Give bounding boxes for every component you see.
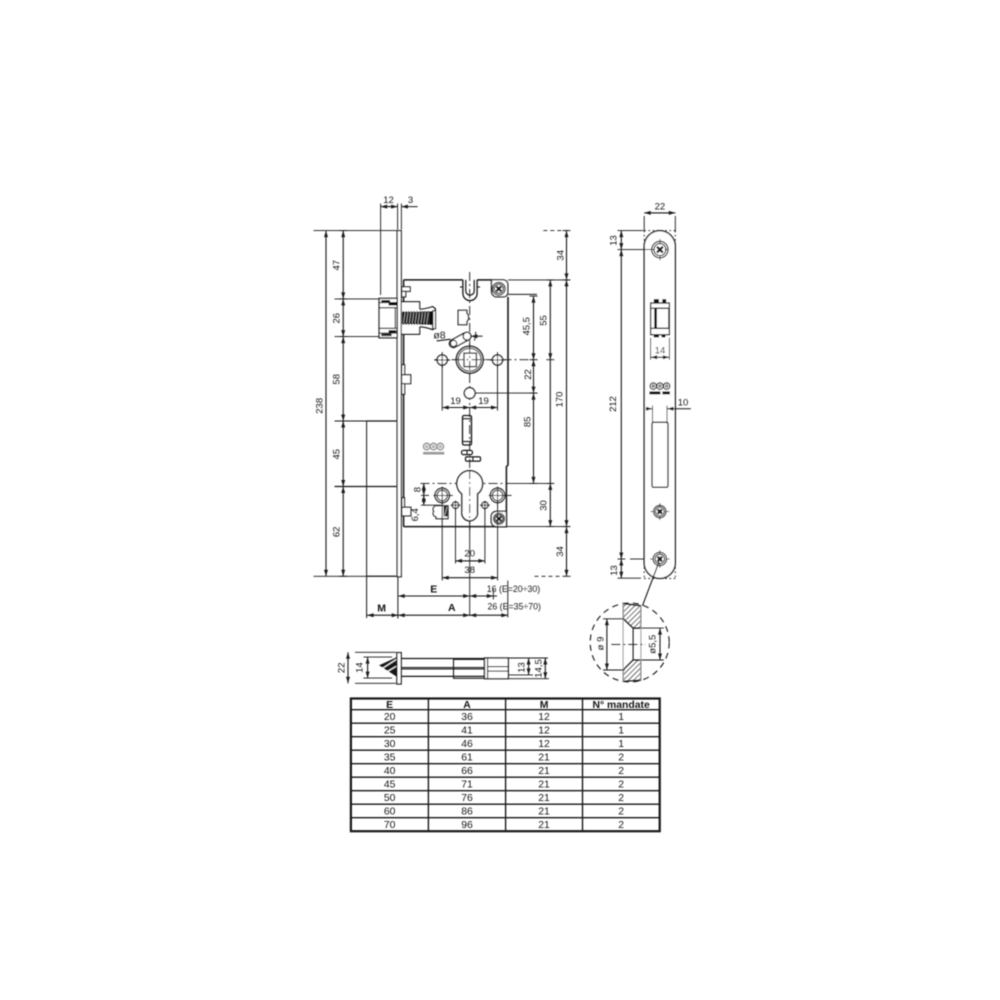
svg-text:22: 22 [336,663,347,674]
svg-text:1: 1 [618,725,624,736]
svg-text:2: 2 [618,766,624,777]
svg-text:41: 41 [461,725,473,736]
svg-text:35: 35 [384,752,396,763]
svg-text:14: 14 [355,662,366,673]
svg-text:3: 3 [408,195,413,206]
svg-text:96: 96 [461,820,473,831]
svg-text:45: 45 [384,779,396,790]
svg-text:N° mandate: N° mandate [592,700,649,711]
svg-text:13: 13 [516,662,527,673]
svg-text:M: M [377,603,386,615]
svg-text:36: 36 [461,712,473,723]
svg-text:A: A [448,602,456,614]
svg-text:8: 8 [413,487,424,492]
svg-text:2: 2 [618,793,624,804]
svg-text:12: 12 [538,712,550,723]
svg-text:M: M [540,700,549,711]
svg-text:1: 1 [618,739,624,750]
svg-text:21: 21 [538,779,550,790]
svg-text:2: 2 [618,820,624,831]
svg-text:ø8: ø8 [433,330,445,342]
svg-text:16 (E=20÷30): 16 (E=20÷30) [487,584,541,594]
svg-text:14,5: 14,5 [533,659,544,678]
svg-text:22: 22 [523,369,534,380]
svg-text:40: 40 [384,766,396,777]
svg-text:170: 170 [555,392,566,408]
svg-text:A: A [463,700,471,711]
svg-text:62: 62 [332,527,343,538]
svg-text:55: 55 [538,315,549,326]
svg-text:61: 61 [461,752,473,763]
svg-text:76: 76 [461,793,473,804]
svg-text:21: 21 [538,806,550,817]
svg-text:21: 21 [538,766,550,777]
svg-text:10: 10 [678,397,689,408]
svg-text:21: 21 [538,793,550,804]
svg-text:ø5,5: ø5,5 [647,635,658,654]
svg-text:20: 20 [464,549,475,560]
svg-text:85: 85 [522,417,533,428]
svg-text:1: 1 [618,712,624,723]
svg-text:2: 2 [618,779,624,790]
svg-text:2: 2 [618,752,624,763]
svg-text:12: 12 [538,739,550,750]
svg-text:6,4: 6,4 [410,508,421,521]
svg-text:34: 34 [555,546,566,557]
svg-text:38: 38 [464,565,475,576]
svg-text:45: 45 [332,449,343,460]
svg-text:47: 47 [332,260,343,271]
svg-text:34: 34 [555,250,566,261]
svg-text:26: 26 [332,313,343,324]
svg-text:50: 50 [384,793,396,804]
svg-text:238: 238 [315,398,326,414]
svg-text:66: 66 [461,766,473,777]
svg-text:13: 13 [609,565,620,576]
svg-text:70: 70 [384,820,396,831]
svg-text:12: 12 [538,725,550,736]
svg-text:71: 71 [461,779,473,790]
svg-text:26 (E=35÷70): 26 (E=35÷70) [487,602,541,612]
svg-text:2: 2 [618,806,624,817]
svg-text:212: 212 [608,396,619,412]
svg-text:86: 86 [461,806,473,817]
svg-text:46: 46 [461,739,473,750]
svg-text:21: 21 [538,752,550,763]
svg-text:E: E [386,700,393,711]
svg-text:22: 22 [655,201,666,212]
svg-text:25: 25 [384,725,396,736]
svg-text:19: 19 [478,396,489,407]
svg-text:58: 58 [332,374,343,385]
svg-text:14: 14 [655,345,666,356]
svg-text:19: 19 [450,396,461,407]
svg-text:45,5: 45,5 [522,317,533,336]
svg-text:30: 30 [539,500,550,511]
svg-text:12: 12 [383,195,394,206]
svg-text:20: 20 [384,712,396,723]
svg-text:E: E [430,584,437,596]
svg-text:30: 30 [384,739,396,750]
svg-text:ø 9: ø 9 [596,637,607,651]
svg-text:13: 13 [609,235,620,246]
svg-text:21: 21 [538,820,550,831]
svg-text:60: 60 [384,806,396,817]
